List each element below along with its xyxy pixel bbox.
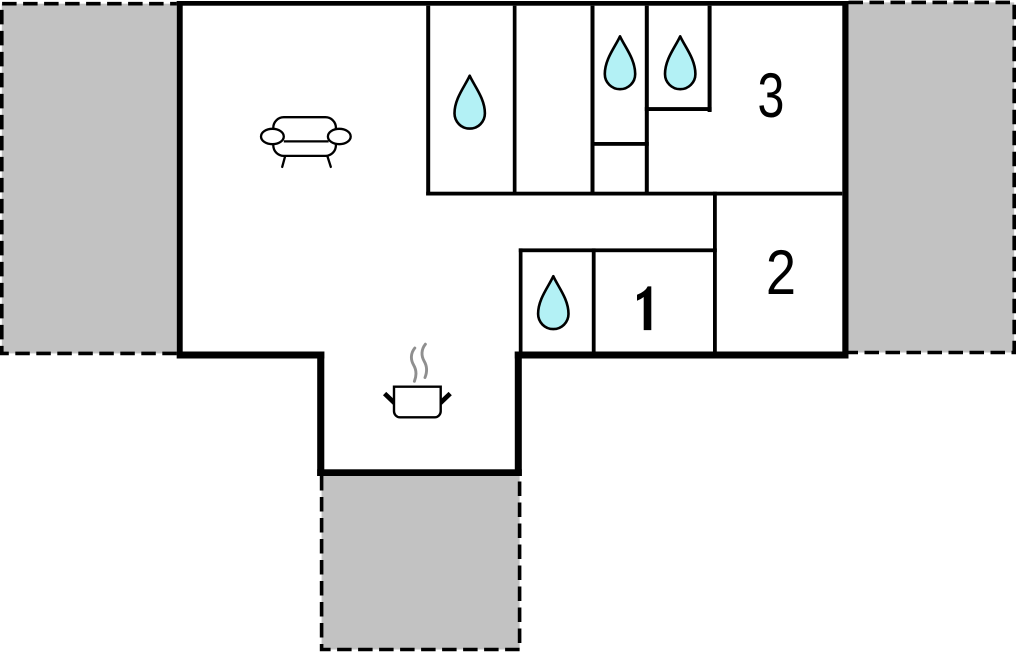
svg-text:3: 3 [758, 60, 785, 131]
svg-text:2: 2 [766, 238, 796, 308]
